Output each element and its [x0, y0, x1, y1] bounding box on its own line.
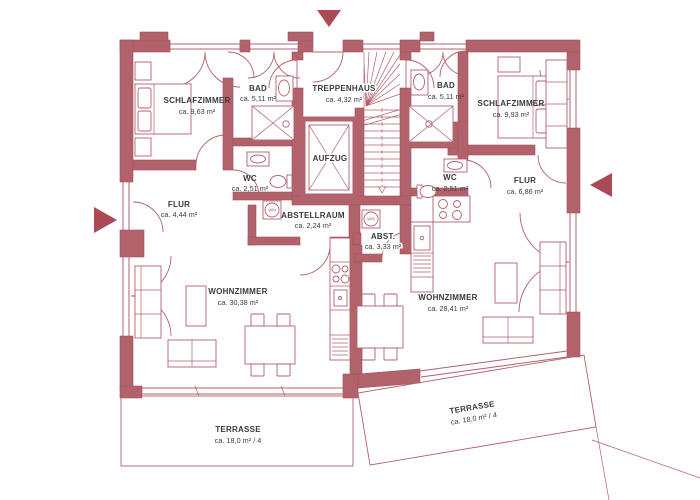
wall-segment [400, 40, 420, 52]
site-boundary-line [592, 427, 700, 500]
wall-segment [343, 40, 363, 52]
room-area-wohnzimmer-left: ca. 30,38 m² [218, 298, 259, 307]
room-label-wohnzimmer-left: WOHNZIMMER [208, 287, 267, 296]
toilet-tank [287, 175, 292, 188]
dining-table [245, 326, 295, 364]
dining-chair [277, 314, 290, 326]
room-label-schlafzimmer-right: SCHLAFZIMMER [478, 99, 545, 108]
window-glass [123, 182, 129, 230]
dining-chair [384, 348, 397, 360]
wall-segment [248, 237, 300, 245]
nightstand [135, 62, 151, 80]
room-area-terrasse-left: ca. 18,0 m² / 4 [215, 436, 262, 445]
staircase [362, 52, 402, 193]
room-label-bad-left: BAD [249, 84, 267, 93]
exterior-pier [140, 32, 168, 41]
toilet-bowl [270, 176, 286, 188]
wall-segment [567, 312, 580, 357]
dining-table [357, 306, 403, 348]
tv-board [186, 286, 206, 326]
room-area-bad-left: ca. 5,11 m² [240, 94, 277, 103]
wall-segment [120, 336, 133, 388]
room-area-treppenhaus: ca. 4,32 m² [326, 95, 363, 104]
side-entrance-door-arc [133, 202, 163, 232]
dining-chair [362, 348, 375, 360]
window-glass [570, 213, 576, 312]
terrace-glazing [420, 351, 567, 377]
wall-segment [233, 192, 292, 200]
wall-segment [223, 78, 233, 170]
stair-treads [364, 110, 400, 187]
room-label-wc-left: WC [243, 174, 257, 183]
kitchen-counter [433, 196, 470, 222]
sofa [135, 266, 161, 338]
wall-segment [355, 254, 382, 262]
kitchen-left [330, 238, 350, 360]
room-area-flur-left: ca. 4,44 m² [161, 210, 198, 219]
room-area-wc-right: ca. 2,51 m² [432, 184, 469, 193]
bedroom-right-door-arc [538, 155, 566, 183]
wall-segment [292, 52, 303, 60]
window-glass [170, 42, 240, 51]
floor-plan-canvas: AUFZUG WM WM [0, 0, 700, 500]
room-area-abstellraum: ca. 2,24 m² [295, 221, 332, 230]
room-label-abst: ABST. [371, 232, 395, 241]
room-area-wohnzimmer-right: ca. 28,41 m² [428, 304, 469, 313]
wall-segment [120, 40, 133, 182]
washing-machine-label: WM [367, 217, 375, 222]
wall-segment [466, 40, 580, 52]
room-label-bad-right: BAD [437, 81, 455, 90]
bedroom-left-door-arc [196, 135, 226, 165]
sofa [540, 242, 566, 314]
room-area-schlafzimmer-left: ca. 9,63 m² [179, 107, 216, 116]
floor-plan-svg: AUFZUG WM WM [0, 0, 700, 500]
living-left-furniture [135, 266, 295, 376]
window-glass [420, 44, 466, 49]
room-area-schlafzimmer-right: ca. 9,93 m² [493, 110, 530, 119]
dining-chair [251, 364, 264, 376]
room-label-treppenhaus: TREPPENHAUS [312, 84, 376, 93]
dining-chair [277, 364, 290, 376]
dining-chair [251, 314, 264, 326]
wall-segment [458, 122, 468, 160]
kitchen-right [411, 196, 470, 292]
terrasse-right-label-group: TERRASSE ca. 18,0 m² / 4 [448, 399, 497, 426]
wall-segment [120, 230, 144, 257]
wall-segment [400, 205, 411, 254]
room-area-flur-right: ca. 6,86 m² [507, 187, 544, 196]
dining-chair [362, 294, 375, 306]
wall-segment [358, 369, 420, 388]
entrance-door-arc [313, 52, 343, 82]
pillow [138, 111, 151, 131]
dresser [498, 57, 520, 72]
dining-chair [384, 294, 397, 306]
wall-segment [298, 40, 313, 52]
window-glass [570, 70, 576, 128]
wall-segment [567, 52, 580, 70]
room-label-aufzug: AUFZUG [313, 154, 348, 163]
room-label-abstellraum: ABSTELLRAUM [281, 211, 345, 220]
room-label-terrasse-left: TERRASSE [215, 425, 261, 434]
entrance-arrow-right-icon [590, 173, 612, 197]
room-label-wc-right: WC [443, 173, 457, 182]
wall-segment [567, 128, 580, 213]
room-label-schlafzimmer-left: SCHLAFZIMMER [164, 96, 231, 105]
exterior-pier [420, 32, 434, 41]
room-label-flur-right: FLUR [514, 176, 536, 185]
stair-winder-treads [364, 52, 400, 108]
entrance-arrow-top-icon [317, 10, 341, 27]
room-label-wohnzimmer-right: WOHNZIMMER [418, 293, 477, 302]
tv-board [495, 263, 517, 303]
window-glass [248, 44, 300, 49]
washing-machine-label: WM [268, 208, 276, 213]
nightstand [135, 138, 151, 156]
duct-marker [353, 233, 361, 244]
exterior-pier [288, 32, 313, 41]
abstellraum-door-arc [300, 245, 330, 275]
pillow [138, 88, 151, 108]
wall-segment [133, 160, 196, 170]
wall-segment [400, 52, 411, 60]
room-label-flur-left: FLUR [168, 200, 190, 209]
entrance-arrow-left-icon [94, 207, 117, 233]
room-area-wc-left: ca. 2,51 m² [232, 184, 269, 193]
terrace-glazing [140, 388, 343, 394]
room-area-bad-right: ca. 5,11 m² [428, 92, 465, 101]
window-glass [123, 256, 129, 336]
wall-segment [343, 374, 358, 398]
room-area-abst: ca. 3,33 m² [365, 242, 402, 251]
wall-segment [458, 52, 468, 122]
bad-left-door-arc [228, 52, 254, 78]
elevator: AUFZUG [303, 119, 355, 196]
window-glass [363, 44, 400, 49]
wall-segment [240, 40, 250, 52]
